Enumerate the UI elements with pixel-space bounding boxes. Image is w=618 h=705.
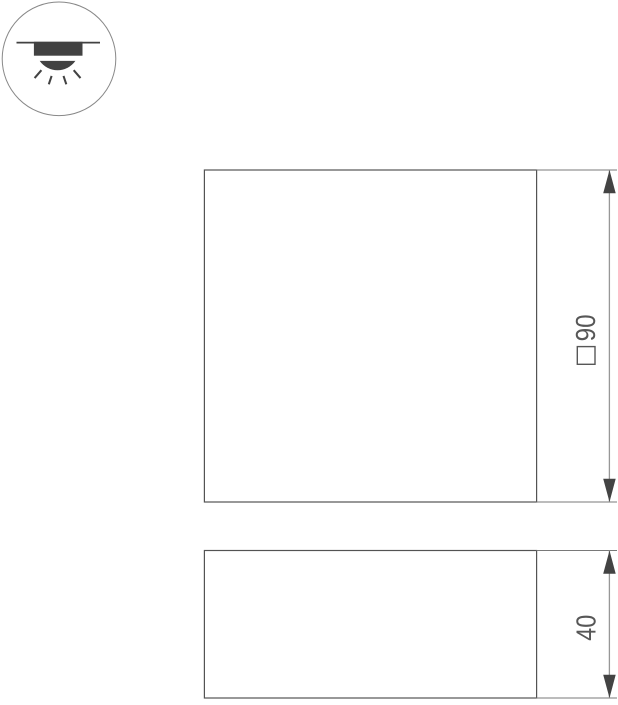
svg-text:90: 90 — [570, 314, 601, 341]
svg-text:40: 40 — [570, 615, 601, 641]
